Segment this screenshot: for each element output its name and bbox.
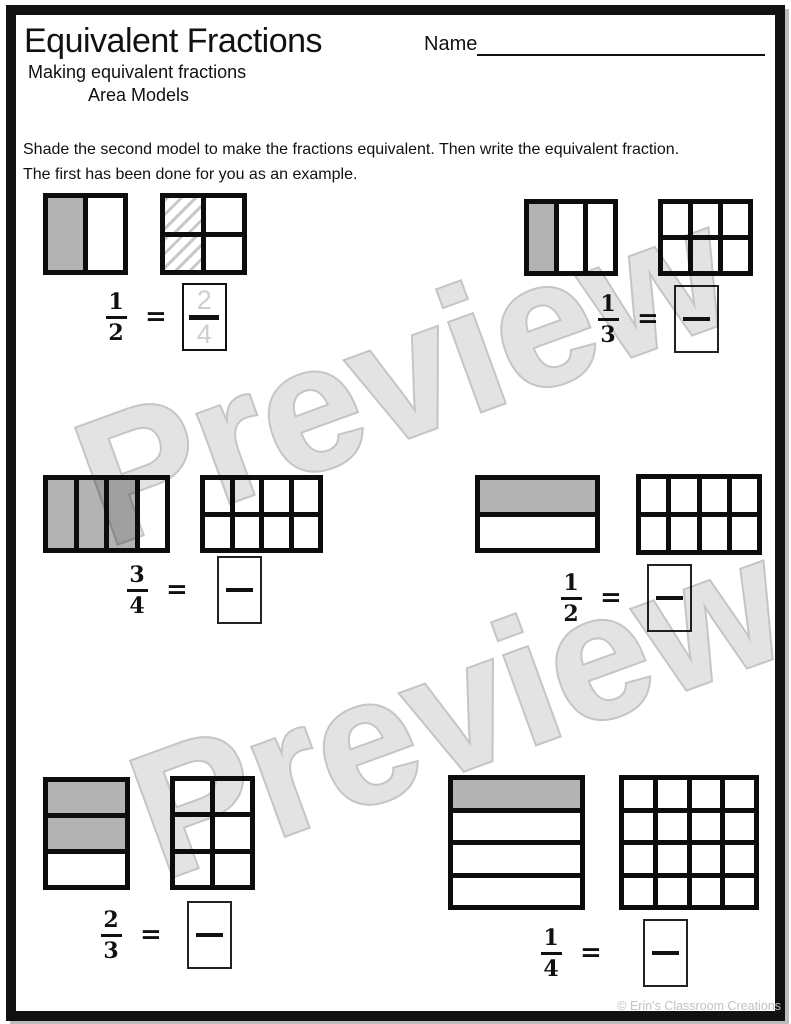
name-label: Name <box>424 33 477 56</box>
fraction-bar <box>127 589 148 592</box>
model-cell[interactable] <box>732 517 757 550</box>
answer-box[interactable] <box>647 564 692 632</box>
model-cell <box>453 780 580 808</box>
model-cell[interactable] <box>215 781 250 812</box>
target-area-model[interactable] <box>619 775 759 910</box>
model-cell[interactable] <box>692 780 721 808</box>
model-cell <box>48 480 74 548</box>
given-fraction: 1 4 <box>537 927 565 980</box>
model-cell[interactable] <box>658 780 687 808</box>
model-cell[interactable] <box>702 517 727 550</box>
model-cell[interactable] <box>624 780 653 808</box>
target-area-model[interactable] <box>160 193 247 275</box>
answer-fraction-bar <box>652 951 679 955</box>
equation: 1 3 = <box>594 285 719 353</box>
model-cell[interactable] <box>165 237 201 271</box>
model-cell[interactable] <box>641 517 666 550</box>
model-cell[interactable] <box>725 780 754 808</box>
fraction-bar <box>561 597 582 600</box>
fraction-denominator: 4 <box>543 958 558 980</box>
given-fraction: 2 3 <box>97 909 125 962</box>
target-area-model[interactable] <box>636 474 762 555</box>
given-area-model <box>43 475 170 553</box>
model-cell <box>48 818 125 849</box>
fraction-numerator: 1 <box>563 572 578 594</box>
given-fraction: 3 4 <box>123 564 151 617</box>
model-cell <box>453 813 580 841</box>
fraction-bar <box>541 952 562 955</box>
model-cell[interactable] <box>723 204 748 235</box>
given-area-model <box>43 777 130 890</box>
model-cell[interactable] <box>692 878 721 906</box>
model-cell[interactable] <box>702 479 727 512</box>
fraction-numerator: 1 <box>600 293 615 315</box>
model-cell <box>48 198 83 270</box>
model-cell[interactable] <box>658 845 687 873</box>
model-cell[interactable] <box>294 517 319 549</box>
model-cell[interactable] <box>175 817 210 848</box>
model-cell[interactable] <box>205 517 230 549</box>
target-area-model[interactable] <box>170 776 255 890</box>
model-cell[interactable] <box>215 817 250 848</box>
model-cell[interactable] <box>165 198 201 232</box>
model-cell[interactable] <box>692 813 721 841</box>
model-cell[interactable] <box>692 845 721 873</box>
answer-box[interactable] <box>217 556 262 624</box>
model-cell <box>480 517 595 549</box>
equation: 1 2 = 2 4 <box>102 283 227 351</box>
answer-denominator: 4 <box>197 320 212 348</box>
answer-fraction-bar <box>196 933 223 937</box>
fraction-denominator: 3 <box>103 940 118 962</box>
name-input-line[interactable] <box>477 34 765 56</box>
fraction-numerator: 2 <box>103 909 118 931</box>
copyright-credit: © Erin's Classroom Creations <box>617 999 781 1013</box>
model-cell <box>79 480 105 548</box>
given-fraction: 1 2 <box>557 572 585 625</box>
equals-sign: = <box>600 585 622 611</box>
model-cell[interactable] <box>624 878 653 906</box>
model-cell[interactable] <box>663 240 688 271</box>
given-area-model <box>43 193 128 275</box>
model-cell <box>453 878 580 906</box>
model-cell[interactable] <box>206 198 242 232</box>
worksheet-page: Equivalent Fractions Name Making equival… <box>0 0 791 1024</box>
model-cell[interactable] <box>215 854 250 885</box>
model-cell[interactable] <box>264 480 289 512</box>
fraction-denominator: 2 <box>563 603 578 625</box>
model-cell[interactable] <box>235 517 260 549</box>
model-cell[interactable] <box>624 813 653 841</box>
model-cell[interactable] <box>624 845 653 873</box>
answer-box[interactable] <box>643 919 688 987</box>
fraction-numerator: 3 <box>129 564 144 586</box>
model-cell <box>453 845 580 873</box>
equation: 1 2 = <box>557 564 692 632</box>
answer-box[interactable] <box>674 285 719 353</box>
subtitle-line-1: Making equivalent fractions <box>28 62 246 83</box>
model-cell[interactable] <box>641 479 666 512</box>
given-area-model <box>475 475 600 553</box>
fraction-denominator: 4 <box>129 595 144 617</box>
answer-box[interactable]: 2 4 <box>182 283 227 351</box>
instructions-line-2: The first has been done for you as an ex… <box>23 166 357 184</box>
model-cell[interactable] <box>671 517 696 550</box>
model-cell[interactable] <box>658 878 687 906</box>
model-cell <box>588 204 613 271</box>
page-title: Equivalent Fractions <box>24 22 322 61</box>
equals-sign: = <box>140 922 162 948</box>
given-fraction: 1 3 <box>594 293 622 346</box>
equation: 1 4 = <box>537 919 688 987</box>
answer-fraction-bar <box>656 596 683 600</box>
name-row: Name <box>424 33 765 56</box>
equals-sign: = <box>145 304 167 330</box>
answer-fraction-bar <box>226 588 253 592</box>
model-cell[interactable] <box>725 845 754 873</box>
model-cell <box>88 198 123 270</box>
subtitle-line-2: Area Models <box>88 85 189 106</box>
equation: 3 4 = <box>123 556 262 624</box>
model-cell <box>559 204 584 271</box>
model-cell <box>48 854 125 885</box>
given-fraction: 1 2 <box>102 291 130 344</box>
fraction-bar <box>598 318 619 321</box>
model-cell[interactable] <box>693 204 718 235</box>
model-cell <box>480 480 595 512</box>
model-cell[interactable] <box>663 204 688 235</box>
equals-sign: = <box>637 306 659 332</box>
model-cell <box>109 480 135 548</box>
model-cell[interactable] <box>235 480 260 512</box>
model-cell[interactable] <box>294 480 319 512</box>
model-cell[interactable] <box>723 240 748 271</box>
answer-numerator: 2 <box>197 286 212 314</box>
model-cell <box>529 204 554 271</box>
equals-sign: = <box>580 940 602 966</box>
model-cell <box>140 480 166 548</box>
fraction-numerator: 1 <box>543 927 558 949</box>
model-cell[interactable] <box>205 480 230 512</box>
model-cell[interactable] <box>732 479 757 512</box>
equation: 2 3 = <box>97 901 232 969</box>
fraction-bar <box>101 934 122 937</box>
model-cell[interactable] <box>175 781 210 812</box>
fraction-denominator: 2 <box>108 322 123 344</box>
target-area-model[interactable] <box>658 199 753 276</box>
given-area-model <box>524 199 618 276</box>
model-cell[interactable] <box>264 517 289 549</box>
model-cell <box>48 782 125 813</box>
model-cell[interactable] <box>671 479 696 512</box>
model-cell[interactable] <box>725 878 754 906</box>
fraction-denominator: 3 <box>600 324 615 346</box>
answer-fraction-bar <box>683 317 710 321</box>
fraction-numerator: 1 <box>108 291 123 313</box>
target-area-model[interactable] <box>200 475 323 553</box>
model-cell[interactable] <box>658 813 687 841</box>
equals-sign: = <box>166 577 188 603</box>
instructions-line-1: Shade the second model to make the fract… <box>23 141 679 159</box>
model-cell[interactable] <box>175 854 210 885</box>
model-cell[interactable] <box>693 240 718 271</box>
model-cell[interactable] <box>725 813 754 841</box>
model-cell[interactable] <box>206 237 242 271</box>
given-area-model <box>448 775 585 910</box>
fraction-bar <box>106 316 127 319</box>
answer-box[interactable] <box>187 901 232 969</box>
